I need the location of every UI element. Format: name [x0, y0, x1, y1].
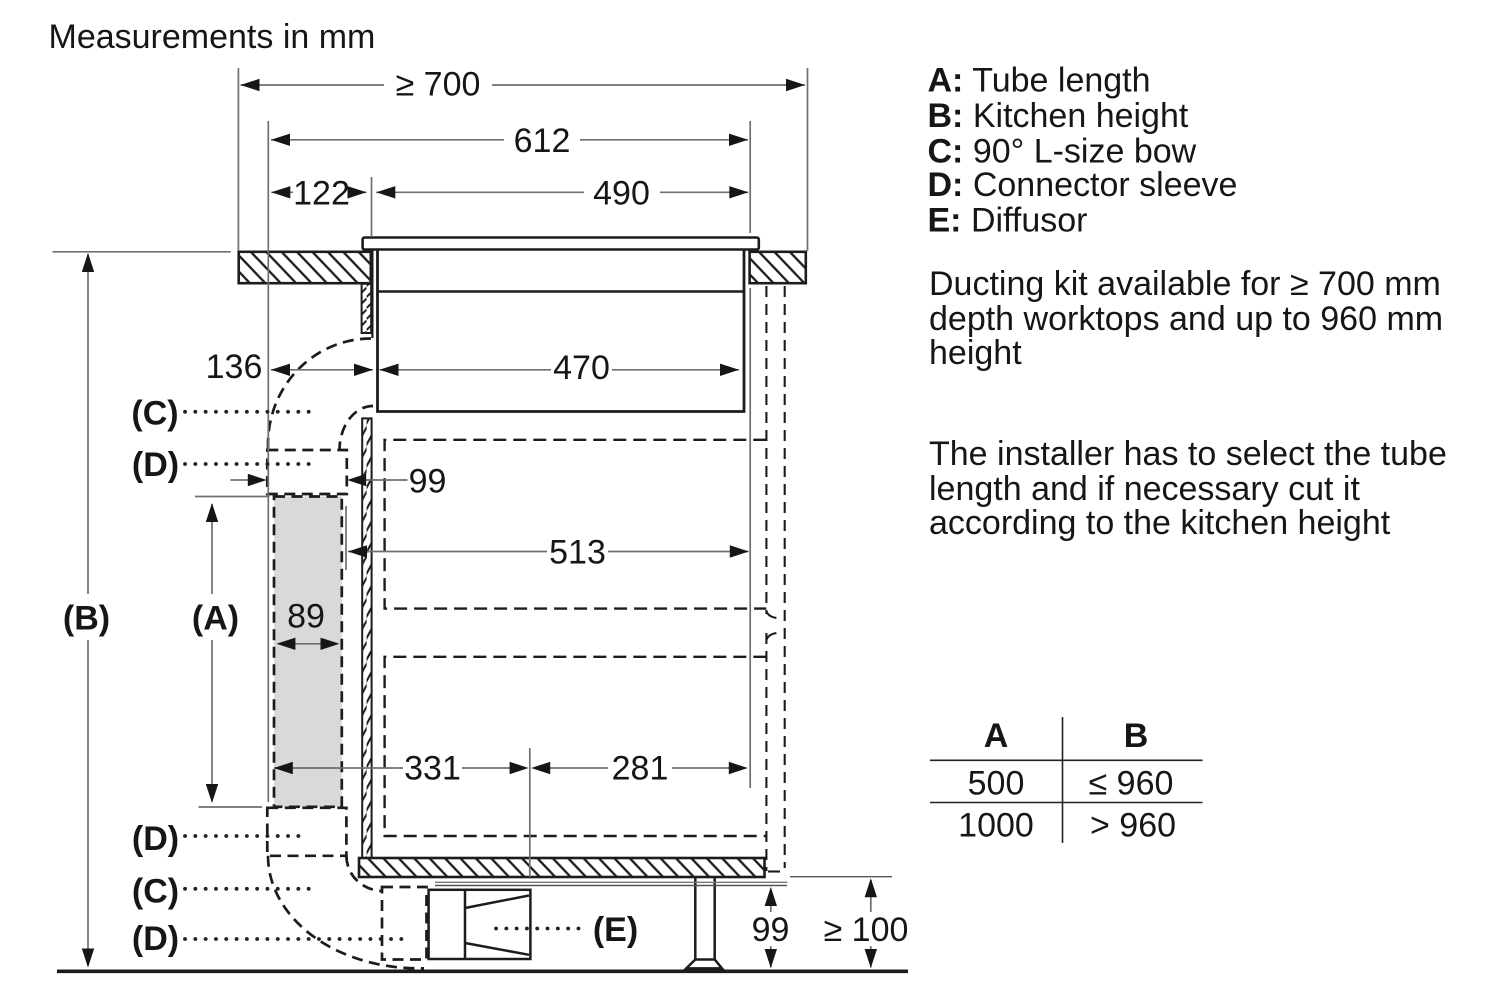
- svg-text:Ducting kit available for ≥ 70: Ducting kit available for ≥ 700 mm: [929, 265, 1441, 303]
- svg-text:136: 136: [206, 348, 263, 386]
- svg-text:500: 500: [968, 765, 1025, 803]
- svg-text:according to the kitchen heigh: according to the kitchen height: [929, 504, 1391, 542]
- svg-text:490: 490: [593, 174, 650, 212]
- svg-text:1000: 1000: [958, 807, 1034, 845]
- svg-text:height: height: [929, 334, 1022, 372]
- svg-text:≥ 100: ≥ 100: [824, 911, 909, 949]
- svg-text:E: Diffusor: E: Diffusor: [928, 202, 1088, 240]
- svg-text:281: 281: [612, 750, 669, 788]
- svg-text:99: 99: [409, 462, 447, 500]
- svg-text:(B): (B): [63, 600, 110, 638]
- svg-text:89: 89: [287, 598, 325, 636]
- svg-text:(C): (C): [132, 873, 179, 911]
- svg-text:B: B: [1124, 717, 1149, 755]
- svg-text:≤ 960: ≤ 960: [1089, 765, 1174, 803]
- svg-text:(A): (A): [192, 600, 239, 638]
- svg-text:(D): (D): [132, 920, 179, 958]
- svg-text:(D): (D): [132, 820, 179, 858]
- svg-text:513: 513: [549, 533, 606, 571]
- svg-text:331: 331: [404, 750, 461, 788]
- svg-text:612: 612: [514, 122, 571, 160]
- svg-text:C: 90° L-size bow: C: 90° L-size bow: [928, 133, 1197, 171]
- svg-text:≥ 700: ≥ 700: [396, 65, 481, 103]
- svg-text:99: 99: [752, 911, 790, 949]
- svg-text:A: Tube length: A: Tube length: [928, 62, 1151, 100]
- svg-text:The installer has to select th: The installer has to select the tube: [929, 435, 1447, 473]
- svg-text:470: 470: [553, 349, 610, 387]
- svg-text:D: Connector sleeve: D: Connector sleeve: [928, 166, 1238, 204]
- svg-text:(C): (C): [131, 395, 178, 433]
- svg-text:> 960: > 960: [1090, 807, 1176, 845]
- svg-text:depth worktops and up to 960 m: depth worktops and up to 960 mm: [929, 300, 1443, 338]
- svg-text:(D): (D): [132, 446, 179, 484]
- svg-text:B: Kitchen height: B: Kitchen height: [928, 97, 1189, 135]
- svg-text:A: A: [984, 717, 1009, 755]
- svg-text:length and if necessary cut it: length and if necessary cut it: [929, 470, 1360, 508]
- svg-text:Measurements in mm: Measurements in mm: [49, 18, 376, 56]
- svg-text:122: 122: [293, 174, 350, 212]
- svg-text:(E): (E): [593, 911, 638, 949]
